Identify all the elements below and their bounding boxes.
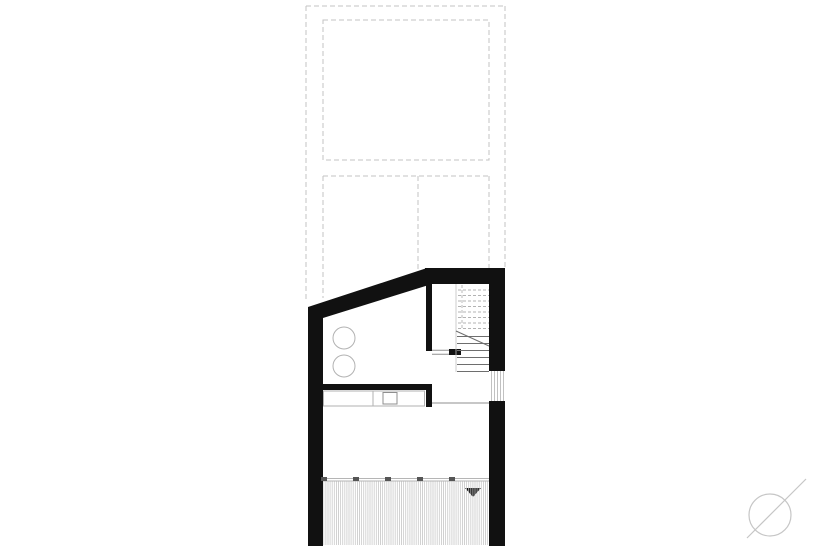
floor-plan-drawing	[0, 0, 818, 551]
floor-plan-sheet	[0, 0, 818, 551]
stair-newel-wall	[449, 349, 461, 355]
terrace-tick	[417, 477, 423, 481]
terrace-tick	[353, 477, 359, 481]
right-exterior-wall-upper	[489, 268, 505, 371]
terrace	[321, 477, 489, 545]
kitchen-wall	[323, 384, 427, 390]
interior-partition-wall	[426, 280, 432, 351]
terrace-tick	[449, 477, 455, 481]
terrace-decking	[324, 481, 490, 545]
entry-door	[489, 371, 505, 401]
kitchen-wall-stub	[426, 384, 432, 407]
terrace-tick	[321, 477, 327, 481]
right-exterior-wall-lower	[489, 401, 505, 546]
left-exterior-wall	[308, 310, 323, 546]
terrace-tick	[385, 477, 391, 481]
